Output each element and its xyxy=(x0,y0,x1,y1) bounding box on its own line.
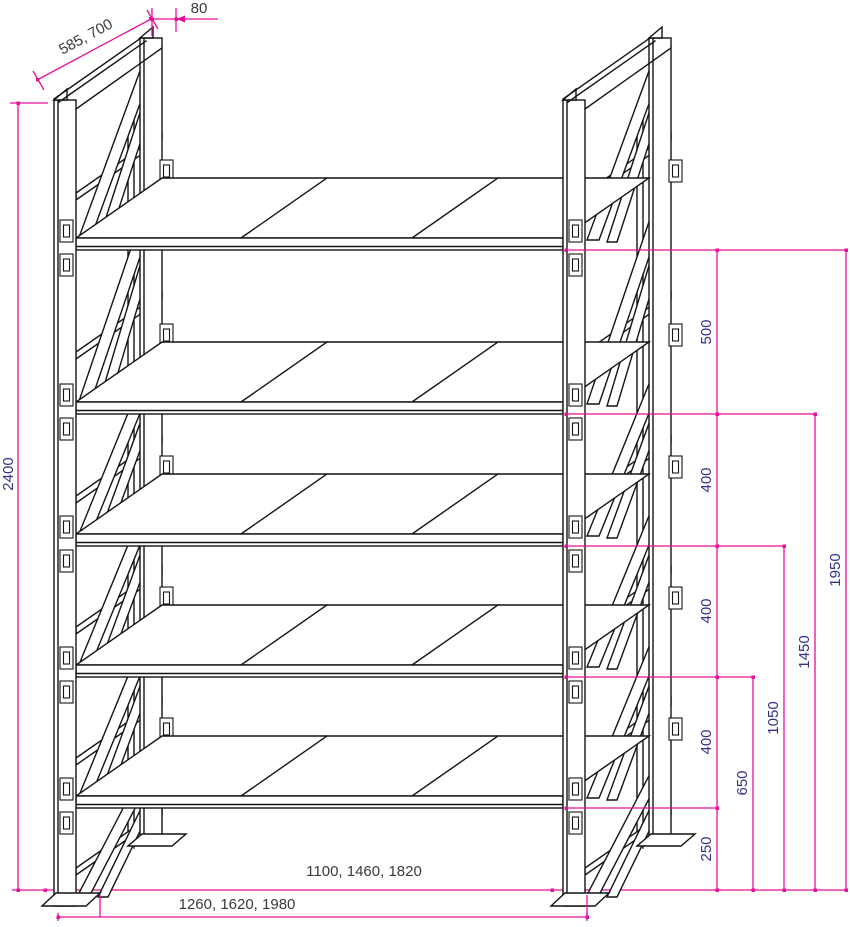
label-inner-widths: 1100, 1460, 1820 xyxy=(306,863,422,880)
rack-technical-drawing-page: 2400 585, 700 80 500 400 400 400 250 650… xyxy=(0,0,850,927)
label-height-1050: 1050 xyxy=(765,701,782,734)
label-gap-400-lower: 400 xyxy=(698,729,715,754)
label-height-1450: 1450 xyxy=(796,635,813,668)
label-outer-widths: 1260, 1620, 1980 xyxy=(179,896,296,913)
label-post-depth: 80 xyxy=(191,0,208,17)
rack-technical-drawing: 2400 585, 700 80 500 400 400 400 250 650… xyxy=(0,0,850,927)
label-total-height: 2400 xyxy=(0,457,17,490)
label-height-1950: 1950 xyxy=(827,553,844,586)
label-gap-250: 250 xyxy=(698,836,715,861)
label-depth-options: 585, 700 xyxy=(56,16,115,59)
label-height-650: 650 xyxy=(734,770,751,795)
label-gap-400-upper: 400 xyxy=(698,467,715,492)
label-gap-400-middle: 400 xyxy=(698,598,715,623)
label-gap-500: 500 xyxy=(698,319,715,344)
